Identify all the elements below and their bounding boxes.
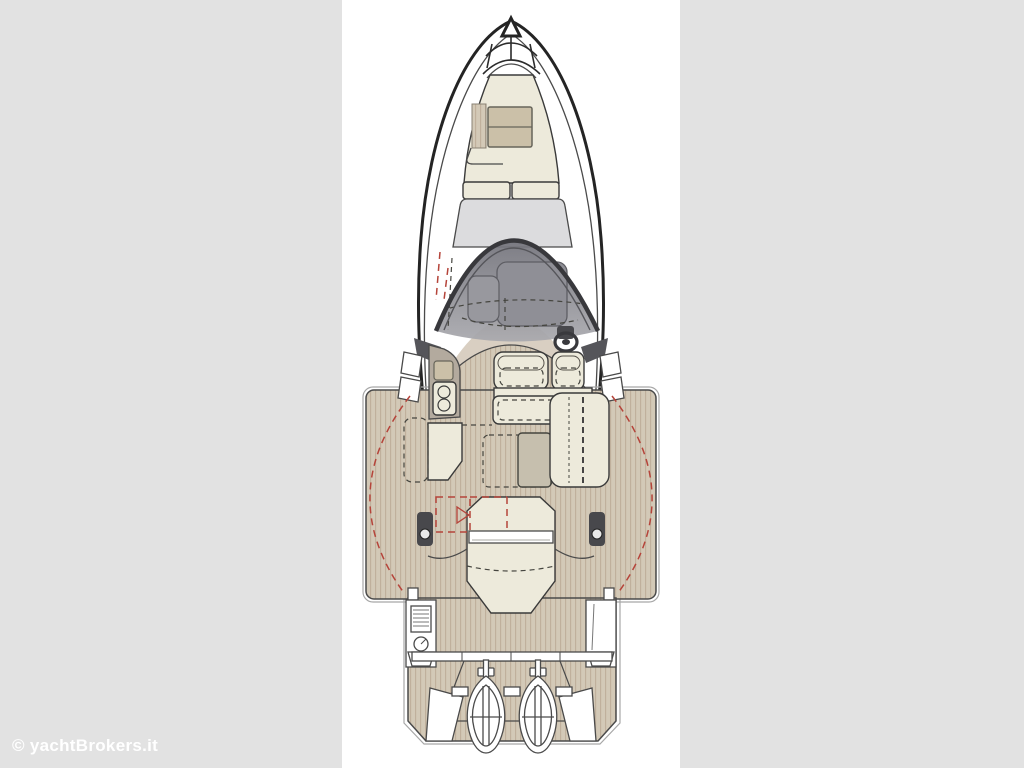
helm-console	[497, 262, 567, 326]
galley-burner-2	[438, 399, 450, 411]
port-cleat-roller	[420, 529, 430, 539]
transom-bar	[412, 652, 612, 661]
bow-walkway-strip	[472, 104, 486, 148]
gate-post-starboard	[604, 588, 614, 600]
bow-seatback-left	[463, 182, 510, 199]
cockpit-table	[518, 433, 551, 487]
galley-worktop	[434, 361, 453, 380]
bow-seatback-right	[512, 182, 559, 199]
aft-sunpad	[467, 497, 555, 613]
watermark: © yachtBrokers.it	[12, 736, 158, 756]
starboard-step-1	[600, 352, 621, 377]
companionway-hatch	[468, 276, 499, 322]
galley	[428, 345, 462, 480]
yacht-deck-plan	[0, 0, 1024, 768]
engine-bracket-1	[452, 687, 468, 696]
port-step-1	[401, 352, 422, 377]
starboard-cleat-roller	[592, 529, 602, 539]
steering-wheel-hub	[562, 339, 570, 345]
aft-sunpad-backrest	[469, 531, 553, 543]
gate-post-port	[408, 588, 418, 600]
engine-bracket-3	[556, 687, 572, 696]
galley-burner-1	[438, 386, 450, 398]
starboard-bench	[550, 393, 609, 487]
watermark-text: © yachtBrokers.it	[12, 736, 158, 755]
screenshot-root: © yachtBrokers.it	[0, 0, 1024, 768]
port-step-2	[398, 377, 421, 402]
engine-bracket-2	[504, 687, 520, 696]
